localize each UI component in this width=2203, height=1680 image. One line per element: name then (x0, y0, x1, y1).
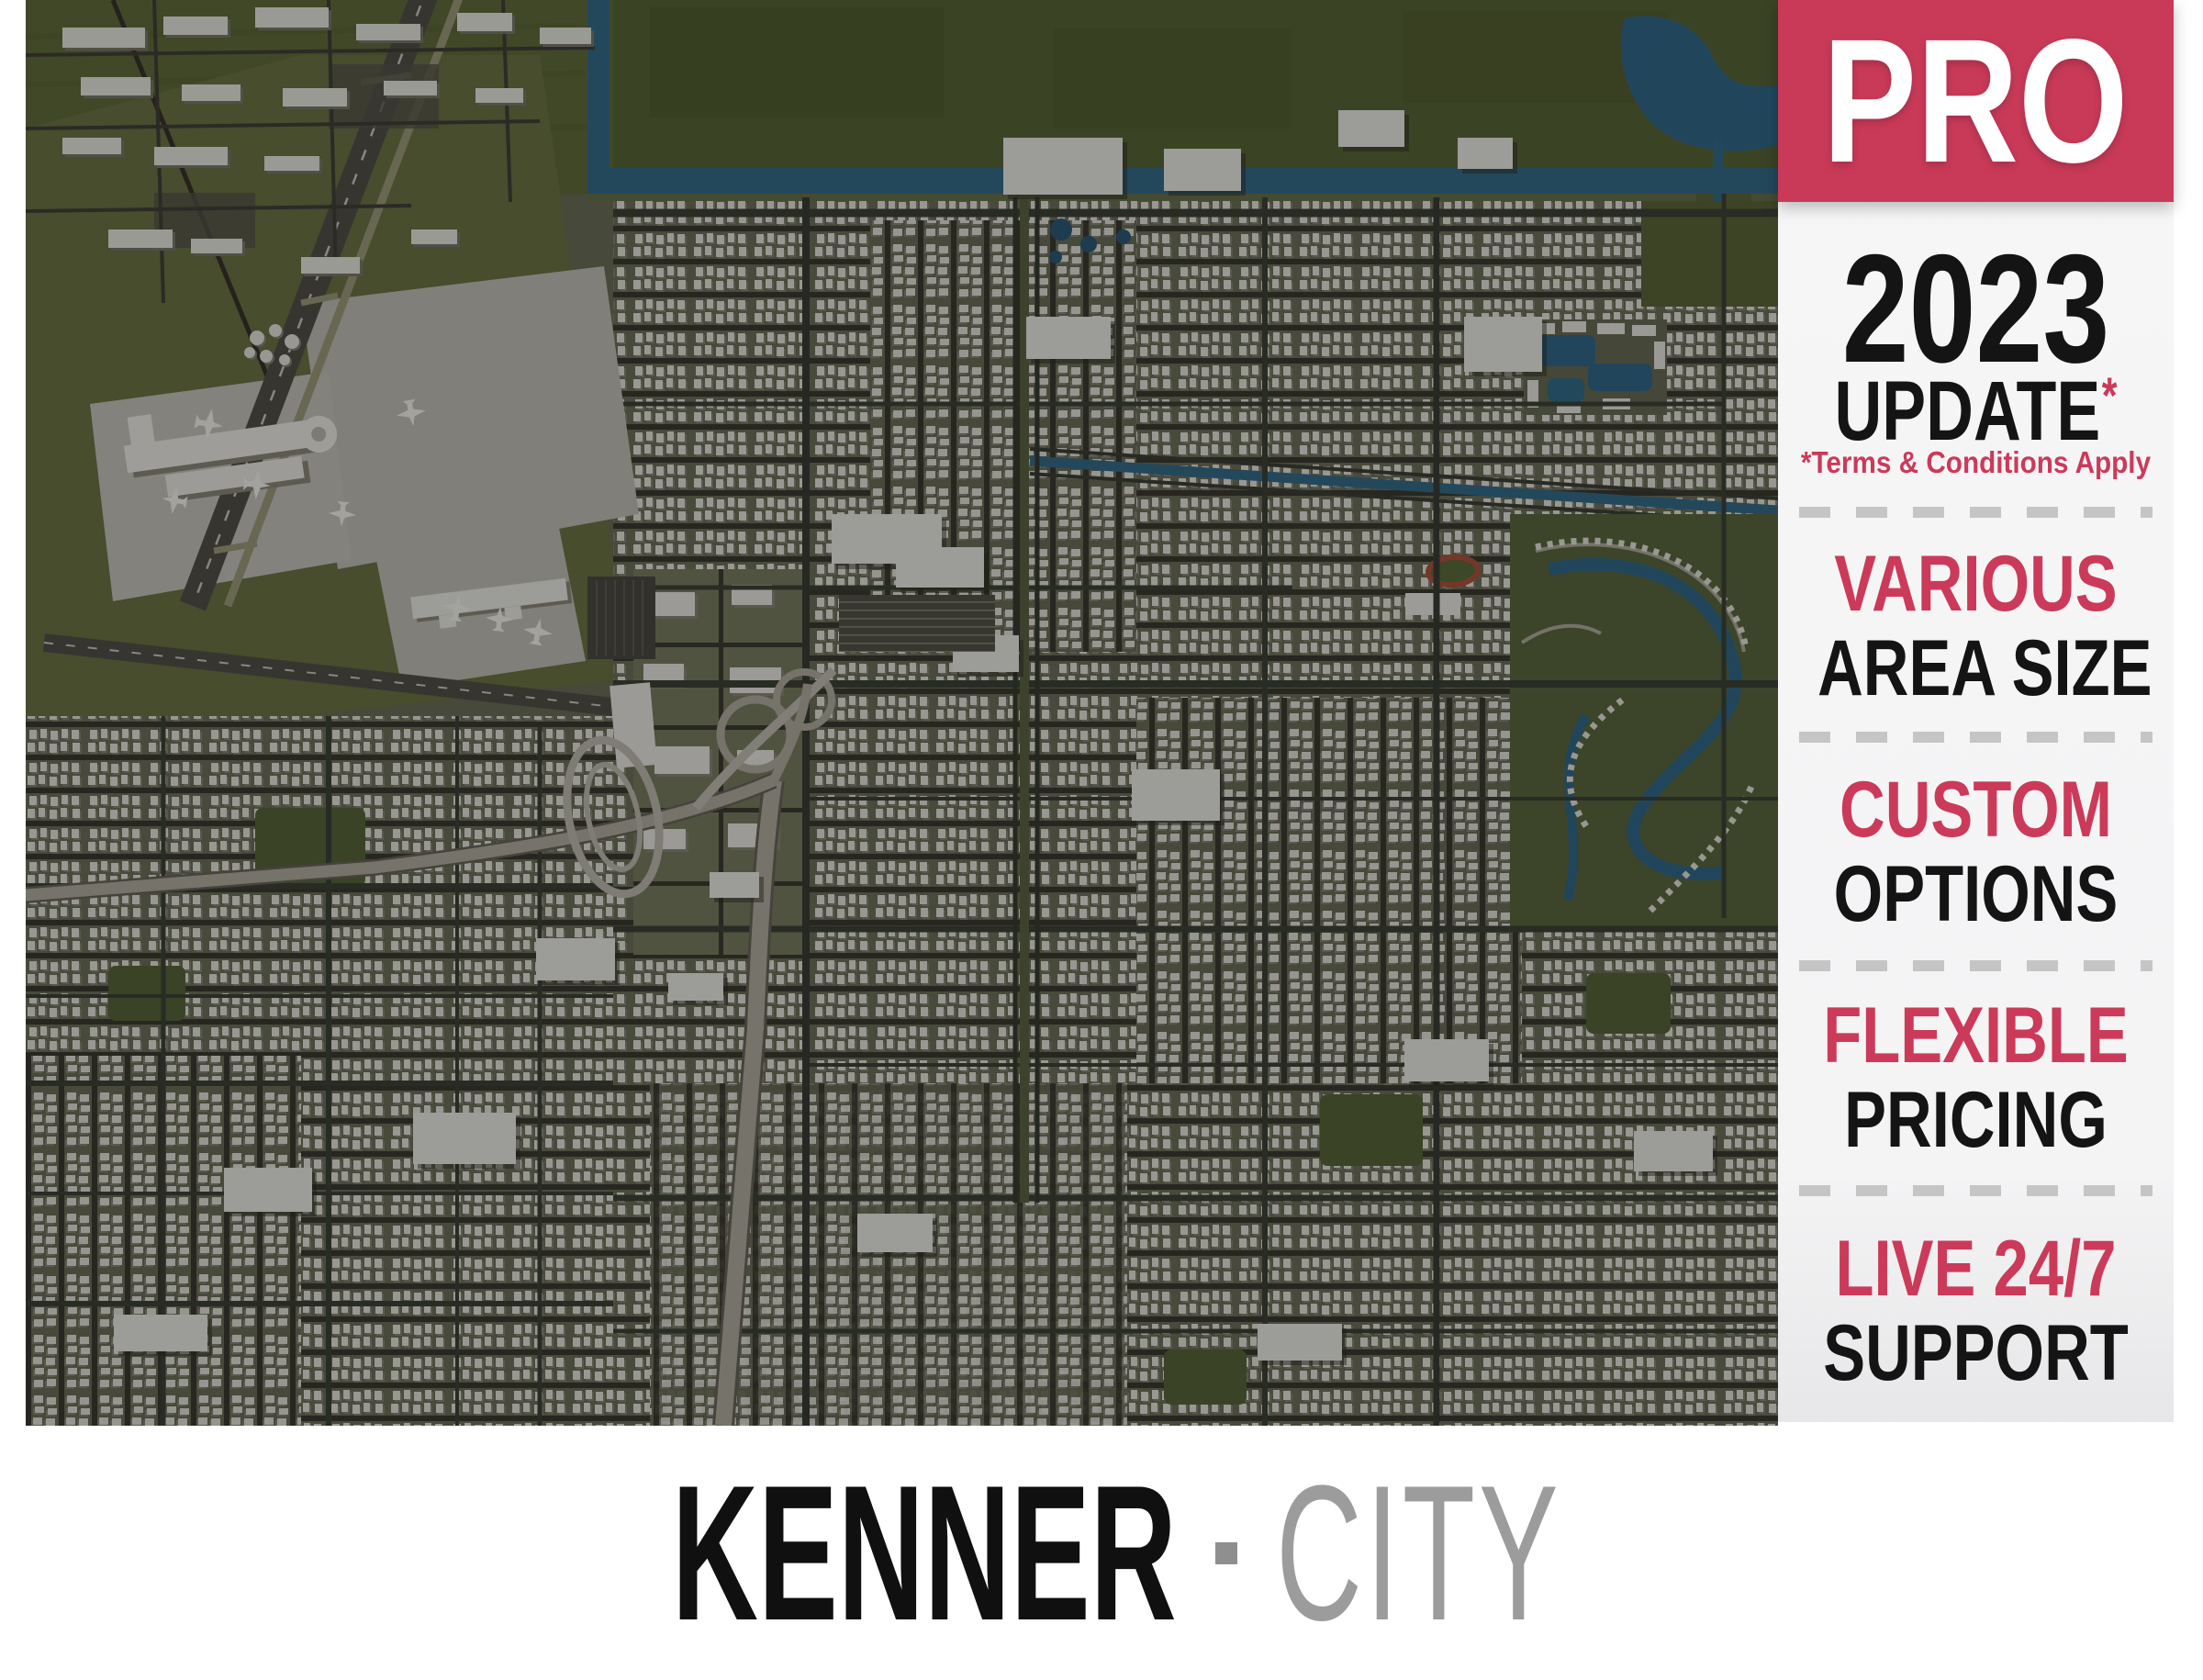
terms-note: *Terms & Conditions Apply (1778, 446, 2174, 479)
feature-accent-label: VARIOUS (1817, 542, 2134, 626)
dashed-divider (1799, 507, 2153, 518)
dashed-divider (1799, 960, 2153, 971)
title-bar: KENNER CITY (0, 1426, 2203, 1680)
feature-flexible-pricing: FLEXIBLE PRICING (1778, 993, 2174, 1162)
feature-accent-label: CUSTOM (1817, 767, 2134, 852)
city-type: CITY (1276, 1457, 1561, 1650)
texture-overlay (26, 0, 1778, 1426)
feature-custom-options: CUSTOM OPTIONS (1778, 767, 2174, 936)
dashed-divider (1799, 1185, 2153, 1196)
update-word: UPDATE (1834, 364, 2100, 458)
feature-area-size: VARIOUS AREA SIZE (1778, 542, 2174, 711)
pro-badge-label: PRO (1823, 13, 2129, 189)
feature-rest-label: SUPPORT (1817, 1311, 2134, 1395)
feature-rest-label: OPTIONS (1817, 852, 2134, 936)
year-heading: 2023 (1778, 231, 2174, 386)
separator-dot-icon (1215, 1542, 1237, 1564)
feature-rest-label: PRICING (1817, 1078, 2134, 1162)
feature-rest-label: AREA SIZE (1817, 626, 2134, 711)
feature-accent-label: FLEXIBLE (1817, 993, 2134, 1078)
dashed-divider (1799, 732, 2153, 743)
city-name: KENNER (672, 1457, 1177, 1650)
feature-live-support: LIVE 24/7 SUPPORT (1778, 1226, 2174, 1395)
city-aerial-map (26, 0, 1778, 1426)
feature-sidebar: PRO 2023 UPDATE* *Terms & Conditions App… (1778, 0, 2174, 1422)
city-title: KENNER CITY (363, 1457, 1737, 1650)
asterisk-mark: * (2102, 367, 2118, 424)
map-render (26, 0, 1778, 1426)
update-heading: UPDATE* (1778, 369, 2174, 454)
pro-badge: PRO (1778, 0, 2174, 202)
product-poster: PRO 2023 UPDATE* *Terms & Conditions App… (0, 0, 2203, 1680)
feature-accent-label: LIVE 24/7 (1817, 1226, 2134, 1311)
